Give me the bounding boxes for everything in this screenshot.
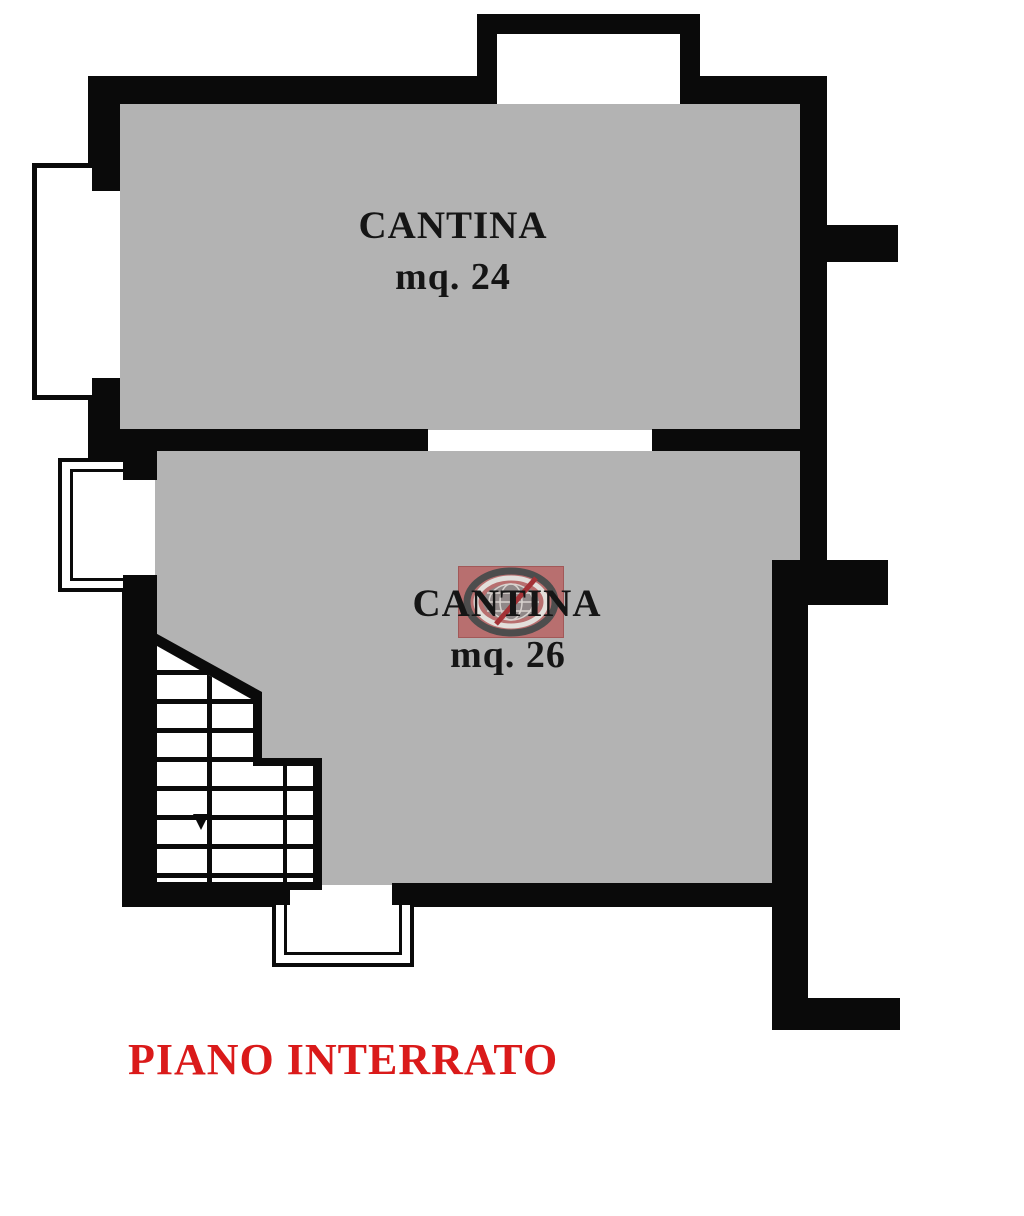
window-shaft-top xyxy=(477,14,700,34)
wall-bottom-right xyxy=(392,883,775,907)
wall-top-left xyxy=(88,76,497,104)
wall-foot-lower-right xyxy=(772,998,900,1030)
wall-middle-left xyxy=(88,429,428,451)
wall-left-upper-a xyxy=(88,76,120,191)
floor-title: PIANO INTERRATO xyxy=(128,1038,558,1082)
room-label-cantina-26: CANTINA xyxy=(357,584,657,623)
wall-stub-upper-right xyxy=(827,225,898,262)
window-well-lower-left-inner xyxy=(70,469,123,581)
wall-right-lower xyxy=(772,560,808,1030)
room-label-cantina-24: CANTINA xyxy=(303,206,603,245)
wall-right-upper xyxy=(800,76,827,575)
window-well-upper-left xyxy=(32,163,92,400)
window-shaft-left xyxy=(477,30,497,104)
room-area-mq24: mq. 24 xyxy=(303,258,603,296)
stair-direction-arrow xyxy=(193,814,209,830)
floor-plan: CANTINA mq. 24 CANTINA mq. 26 PIANO INTE… xyxy=(0,0,1024,1216)
stair-divider xyxy=(283,766,287,882)
window-well-bottom-inner xyxy=(284,905,402,955)
stair-stringer xyxy=(207,666,212,882)
wall-stub-lower-right xyxy=(808,560,888,605)
room-area-mq26: mq. 26 xyxy=(358,636,658,674)
wall-middle-right xyxy=(652,429,827,451)
window-shaft-right xyxy=(680,30,700,104)
